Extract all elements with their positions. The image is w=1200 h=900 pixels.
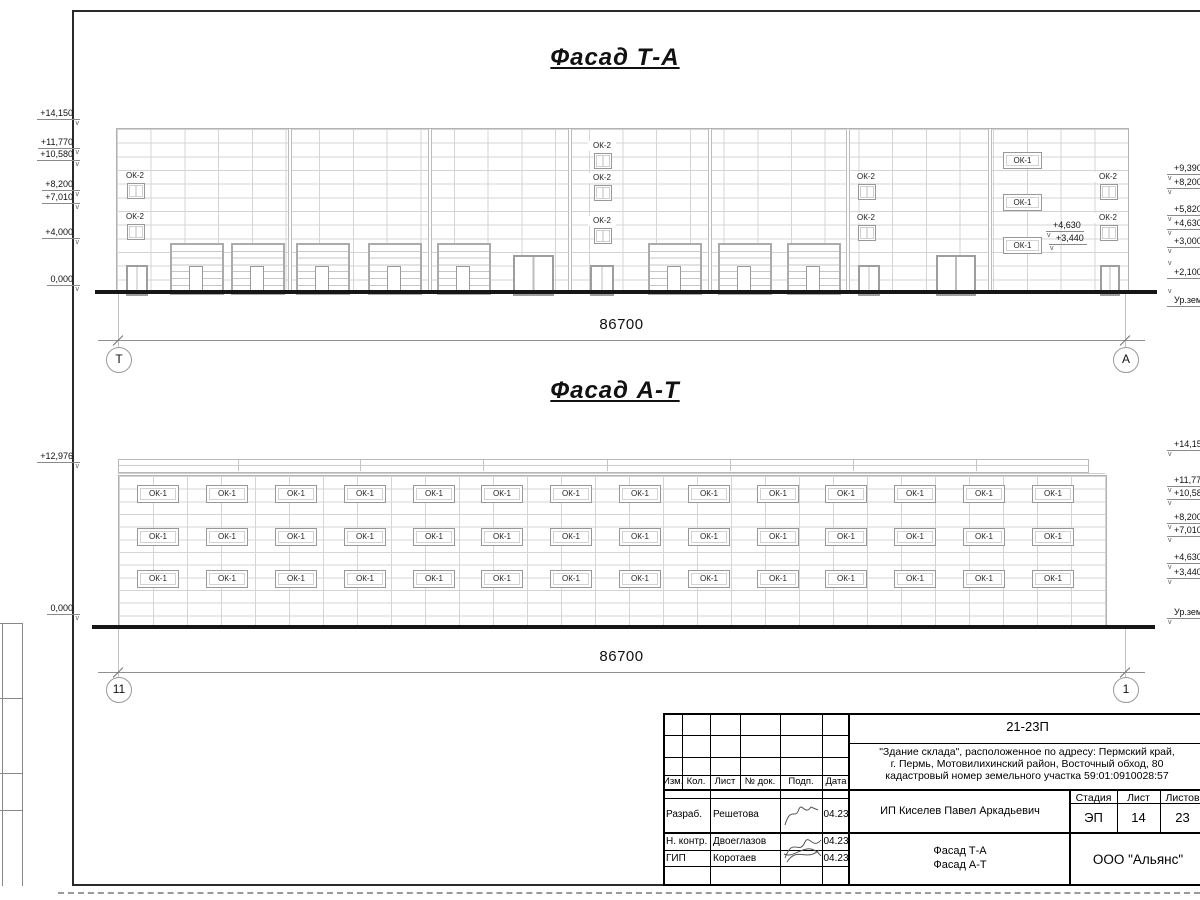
col-header-list: Лист — [710, 777, 740, 788]
facade-top-title: Фасад Т-А — [405, 44, 825, 72]
window-ok1: ОК-1 — [757, 485, 799, 503]
col-header-izm: Изм. — [663, 777, 682, 788]
tb-hline — [663, 832, 1200, 834]
window-ok1: ОК-1 — [688, 570, 730, 588]
elevation-tick-icon: v — [76, 286, 80, 293]
panel-joint — [708, 129, 712, 291]
window-ok1: ОК-1 — [825, 485, 867, 503]
elevation-tick-icon: v — [76, 120, 80, 127]
window-ok1: ОК-1 — [206, 528, 248, 546]
project-description-line: "Здание склада", расположенное по адресу… — [852, 746, 1200, 758]
elevation-mark: Ур.землиv — [1167, 607, 1200, 619]
sheet-label: Лист — [1117, 792, 1160, 804]
dimension-text: 86700 — [118, 648, 1125, 665]
window-ok2 — [127, 183, 145, 199]
facade-bottom-title: Фасад А-Т — [405, 377, 825, 405]
window-ok1: ОК-1 — [550, 485, 592, 503]
tb-hline — [663, 757, 850, 758]
doc-name-line: Фасад А-Т — [852, 859, 1068, 872]
window-ok1: ОК-1 — [413, 528, 455, 546]
parapet-line — [118, 473, 1105, 474]
window-ok1: ОК-1 — [344, 528, 386, 546]
doc-name-line: Фасад Т-А — [852, 845, 1068, 858]
elevation-tick-icon: v — [1168, 288, 1172, 295]
window-ok1: ОК-1 — [275, 485, 317, 503]
elevation-text: +2,100 — [1167, 267, 1200, 279]
window-ok2 — [127, 224, 145, 240]
window-ok1: ОК-1 — [1003, 194, 1042, 211]
elevation-text: 0,000 — [47, 274, 80, 286]
window-ok2 — [1100, 184, 1118, 200]
window-ok1: ОК-1 — [1032, 485, 1074, 503]
margin-box-divider — [0, 623, 22, 624]
panel-joint — [428, 129, 432, 291]
elevation-text: +3,440 — [1049, 233, 1087, 245]
window-ok2 — [594, 185, 612, 201]
row-date: 04.23 — [822, 853, 850, 865]
col-header-podp: Подп. — [780, 777, 822, 788]
window-ok1: ОК-1 — [619, 528, 661, 546]
row-name: Решетова — [713, 809, 779, 821]
window-label: ОК-2 — [121, 171, 149, 181]
elevation-mark: +12,976v — [37, 451, 80, 463]
tb-border — [663, 884, 1200, 886]
elevation-mark: 0,000v — [47, 603, 80, 615]
col-header-ndok: № док. — [740, 777, 780, 788]
tb-hline — [850, 743, 1200, 744]
row-role: ГИП — [666, 853, 710, 865]
elevation-tick-icon: v — [76, 239, 80, 246]
elevation-text: +3,000 — [1167, 236, 1200, 248]
window-ok1: ОК-1 — [137, 485, 179, 503]
elevation-text: +4,630 — [1046, 220, 1084, 232]
elevation-tick-icon: v — [1168, 248, 1172, 255]
row-date: 04.23 — [822, 809, 850, 821]
company-name: ООО "Альянс" — [1071, 852, 1200, 868]
elevation-mark: +7,010v — [42, 192, 80, 204]
title-block: 21-23П "Здание склада", расположенное по… — [663, 713, 1200, 886]
window-ok1: ОК-1 — [413, 570, 455, 588]
window-ok1: ОК-1 — [206, 485, 248, 503]
elevation-text: 0,000 — [47, 603, 80, 615]
window-ok1: ОК-1 — [688, 528, 730, 546]
parapet-joint — [360, 460, 361, 471]
axis-bubble: А — [1113, 347, 1139, 373]
parapet-joint — [238, 460, 239, 471]
window-ok1: ОК-1 — [481, 485, 523, 503]
garage-wicket — [250, 266, 264, 292]
window-ok1: ОК-1 — [963, 528, 1005, 546]
window-label: ОК-2 — [588, 141, 616, 151]
elevation-text: +7,010 — [42, 192, 80, 204]
ground-line — [92, 625, 1155, 629]
elevation-text: Ур.земли — [1167, 295, 1200, 307]
window-ok1: ОК-1 — [481, 528, 523, 546]
elevation-mark: +14,150v — [37, 108, 80, 120]
row-name: Двоеглазов — [713, 836, 783, 848]
elevation-mark: +11,770v — [38, 137, 80, 149]
elevation-tick-icon: v — [1168, 579, 1172, 586]
elevation-mark: +10,580v — [1167, 488, 1200, 500]
elevation-text: +12,976 — [37, 451, 80, 463]
elevation-tick-icon: v — [1168, 260, 1172, 267]
elevation-text: +10,580 — [37, 149, 80, 161]
elevation-text: +10,580 — [1167, 488, 1200, 500]
axis-bubble: 11 — [106, 677, 132, 703]
doc-code: 21-23П — [850, 720, 1200, 735]
window-ok1: ОК-1 — [757, 528, 799, 546]
window-label: ОК-2 — [1094, 172, 1122, 182]
parapet-band — [118, 459, 1089, 473]
window-ok1: ОК-1 — [275, 570, 317, 588]
facade-at-panel-grid — [118, 475, 1107, 629]
elevation-mark: +14,150v — [1167, 439, 1200, 451]
window-ok1: ОК-1 — [825, 528, 867, 546]
elevation-mark: +11,770v — [1167, 475, 1200, 487]
parapet-joint — [853, 460, 854, 471]
window-ok1: ОК-1 — [137, 570, 179, 588]
client-name: ИП Киселев Павел Аркадьевич — [852, 805, 1068, 818]
elevation-text: +4,630 — [1167, 552, 1200, 564]
margin-box-divider — [0, 698, 22, 699]
frame-top — [72, 10, 1200, 12]
window-ok2 — [858, 184, 876, 200]
stage-value: ЭП — [1070, 811, 1117, 826]
parapet-joint — [607, 460, 608, 471]
dimension-line — [98, 672, 1145, 673]
elevation-text: +7,010 — [1167, 525, 1200, 537]
window-label: ОК-2 — [121, 212, 149, 222]
axis-bubble: 1 — [1113, 677, 1139, 703]
project-description-line: кадастровый номер земельного участка 59:… — [852, 770, 1200, 782]
tb-hline — [663, 735, 850, 736]
elevation-mark: +4,630v — [1167, 552, 1200, 564]
elevation-mark: +8,200v — [1167, 512, 1200, 524]
window-ok1: ОК-1 — [894, 528, 936, 546]
panel-joint — [288, 129, 292, 291]
tb-vline — [710, 713, 711, 886]
window-label: ОК-2 — [852, 213, 880, 223]
panel-joint — [846, 129, 850, 291]
elevation-text: +9,390 — [1167, 163, 1200, 175]
sheets-value: 23 — [1160, 811, 1200, 826]
garage-wicket — [189, 266, 203, 292]
window-ok1: ОК-1 — [619, 570, 661, 588]
margin-box-divider — [0, 773, 22, 774]
elevation-text: Ур.земли — [1167, 607, 1200, 619]
elevation-text: +5,820 — [1167, 204, 1200, 216]
row-name: Коротаев — [713, 853, 783, 865]
col-header-data: Дата — [822, 777, 850, 788]
elevation-tick-icon: v — [1168, 619, 1172, 626]
window-ok1: ОК-1 — [894, 485, 936, 503]
window-ok1: ОК-1 — [550, 528, 592, 546]
margin-column-line — [22, 623, 23, 886]
elevation-text: +4,000 — [42, 227, 80, 239]
window-ok1: ОК-1 — [206, 570, 248, 588]
tb-hline — [663, 789, 1200, 791]
window-ok1: ОК-1 — [344, 485, 386, 503]
elevation-tick-icon: v — [76, 463, 80, 470]
sheet-edge-dashed — [58, 892, 1200, 894]
garage-wicket — [456, 266, 470, 292]
elevation-mark: +7,010v — [1167, 525, 1200, 537]
window-ok1: ОК-1 — [275, 528, 317, 546]
elevation-mark: +3,000v — [1167, 236, 1200, 248]
elevation-mark: 0,000v — [47, 274, 80, 286]
elevation-tick-icon: v — [76, 615, 80, 622]
garage-wicket — [806, 266, 820, 292]
window-ok1: ОК-1 — [344, 570, 386, 588]
elevation-mark: +9,390v — [1167, 163, 1200, 175]
tb-hline — [663, 798, 850, 799]
window-ok2 — [594, 228, 612, 244]
axis-bubble: Т — [106, 347, 132, 373]
parapet-joint — [483, 460, 484, 471]
col-header-kol: Кол. — [682, 777, 710, 788]
elevation-text: +14,150 — [37, 108, 80, 120]
window-ok1: ОК-1 — [894, 570, 936, 588]
elevation-tick-icon: v — [1050, 245, 1054, 252]
window-ok1: ОК-1 — [1003, 152, 1042, 169]
sheets-label: Листов — [1160, 792, 1200, 804]
window-ok2 — [594, 153, 612, 169]
panel-joint — [988, 129, 992, 291]
tb-hline — [663, 775, 850, 776]
window-ok1: ОК-1 — [413, 485, 455, 503]
elevation-text: +4,630 — [1167, 218, 1200, 230]
margin-box-divider — [0, 810, 22, 811]
elevation-text: +3,440 — [1167, 567, 1200, 579]
garage-wicket — [387, 266, 401, 292]
garage-wicket — [737, 266, 751, 292]
parapet-joint — [976, 460, 977, 471]
window-ok2 — [1100, 225, 1118, 241]
window-ok1: ОК-1 — [137, 528, 179, 546]
window-label: ОК-2 — [588, 216, 616, 226]
elevation-tick-icon: v — [1168, 189, 1172, 196]
elevation-text: +8,200 — [1167, 512, 1200, 524]
elevation-mark: +8,200v — [42, 179, 80, 191]
elevation-text: +11,770 — [1167, 475, 1200, 487]
panel-joint — [568, 129, 572, 291]
row-date: 04.23 — [822, 836, 850, 848]
garage-wicket — [315, 266, 329, 292]
window-label: ОК-2 — [588, 173, 616, 183]
window-ok1: ОК-1 — [963, 570, 1005, 588]
ground-line — [95, 290, 1157, 294]
row-role: Н. контр. — [666, 836, 712, 848]
elevation-text: +11,770 — [38, 137, 80, 149]
drawing-sheet: Фасад Т-А Фасад А-Т 21-23П "Здание склад… — [0, 0, 1200, 900]
elevation-mark: +8,200v — [1167, 177, 1200, 189]
tb-border — [663, 713, 1200, 715]
tb-vline — [1069, 790, 1071, 886]
elevation-mark: +10,580v — [37, 149, 80, 161]
elevation-mark: +3,440v — [1167, 567, 1200, 579]
window-ok1: ОК-1 — [619, 485, 661, 503]
row-role: Разраб. — [666, 809, 710, 821]
window-label: ОК-2 — [1094, 213, 1122, 223]
elevation-text: +8,200 — [1167, 177, 1200, 189]
window-label: ОК-2 — [852, 172, 880, 182]
window-ok2 — [858, 225, 876, 241]
window-ok1: ОК-1 — [1032, 570, 1074, 588]
sheet-value: 14 — [1117, 811, 1160, 826]
elevation-mark: Ур.землиv — [1167, 295, 1200, 307]
elevation-mark: +4,000v — [42, 227, 80, 239]
parapet-joint — [730, 460, 731, 471]
dimension-text: 86700 — [118, 316, 1125, 333]
window-ok1: ОК-1 — [757, 570, 799, 588]
window-ok1: ОК-1 — [481, 570, 523, 588]
elevation-mark: +3,440v — [1049, 233, 1087, 245]
elevation-tick-icon: v — [1168, 500, 1172, 507]
elevation-tick-icon: v — [1168, 537, 1172, 544]
window-ok1: ОК-1 — [550, 570, 592, 588]
tb-border — [663, 713, 665, 886]
project-description-line: г. Пермь, Мотовилихинский район, Восточн… — [852, 758, 1200, 770]
signature-icon — [781, 799, 821, 831]
signature-icon — [779, 830, 825, 868]
garage-wicket — [667, 266, 681, 292]
elevation-mark: +5,820v — [1167, 204, 1200, 216]
stage-label: Стадия — [1070, 792, 1117, 804]
elevation-text: +8,200 — [42, 179, 80, 191]
window-ok1: ОК-1 — [963, 485, 1005, 503]
window-ok1: ОК-1 — [1032, 528, 1074, 546]
dimension-line — [98, 340, 1145, 341]
window-ok1: ОК-1 — [825, 570, 867, 588]
elevation-tick-icon: v — [76, 204, 80, 211]
elevation-mark: +2,100v — [1167, 267, 1200, 279]
elevation-mark: +4,630v — [1046, 220, 1084, 232]
elevation-mark: +4,630v — [1167, 218, 1200, 230]
elevation-tick-icon: v — [76, 161, 80, 168]
elevation-tick-icon: v — [1168, 451, 1172, 458]
window-ok1: ОК-1 — [688, 485, 730, 503]
elevation-text: +14,150 — [1167, 439, 1200, 451]
margin-column-line — [2, 623, 3, 886]
window-ok1: ОК-1 — [1003, 237, 1042, 254]
